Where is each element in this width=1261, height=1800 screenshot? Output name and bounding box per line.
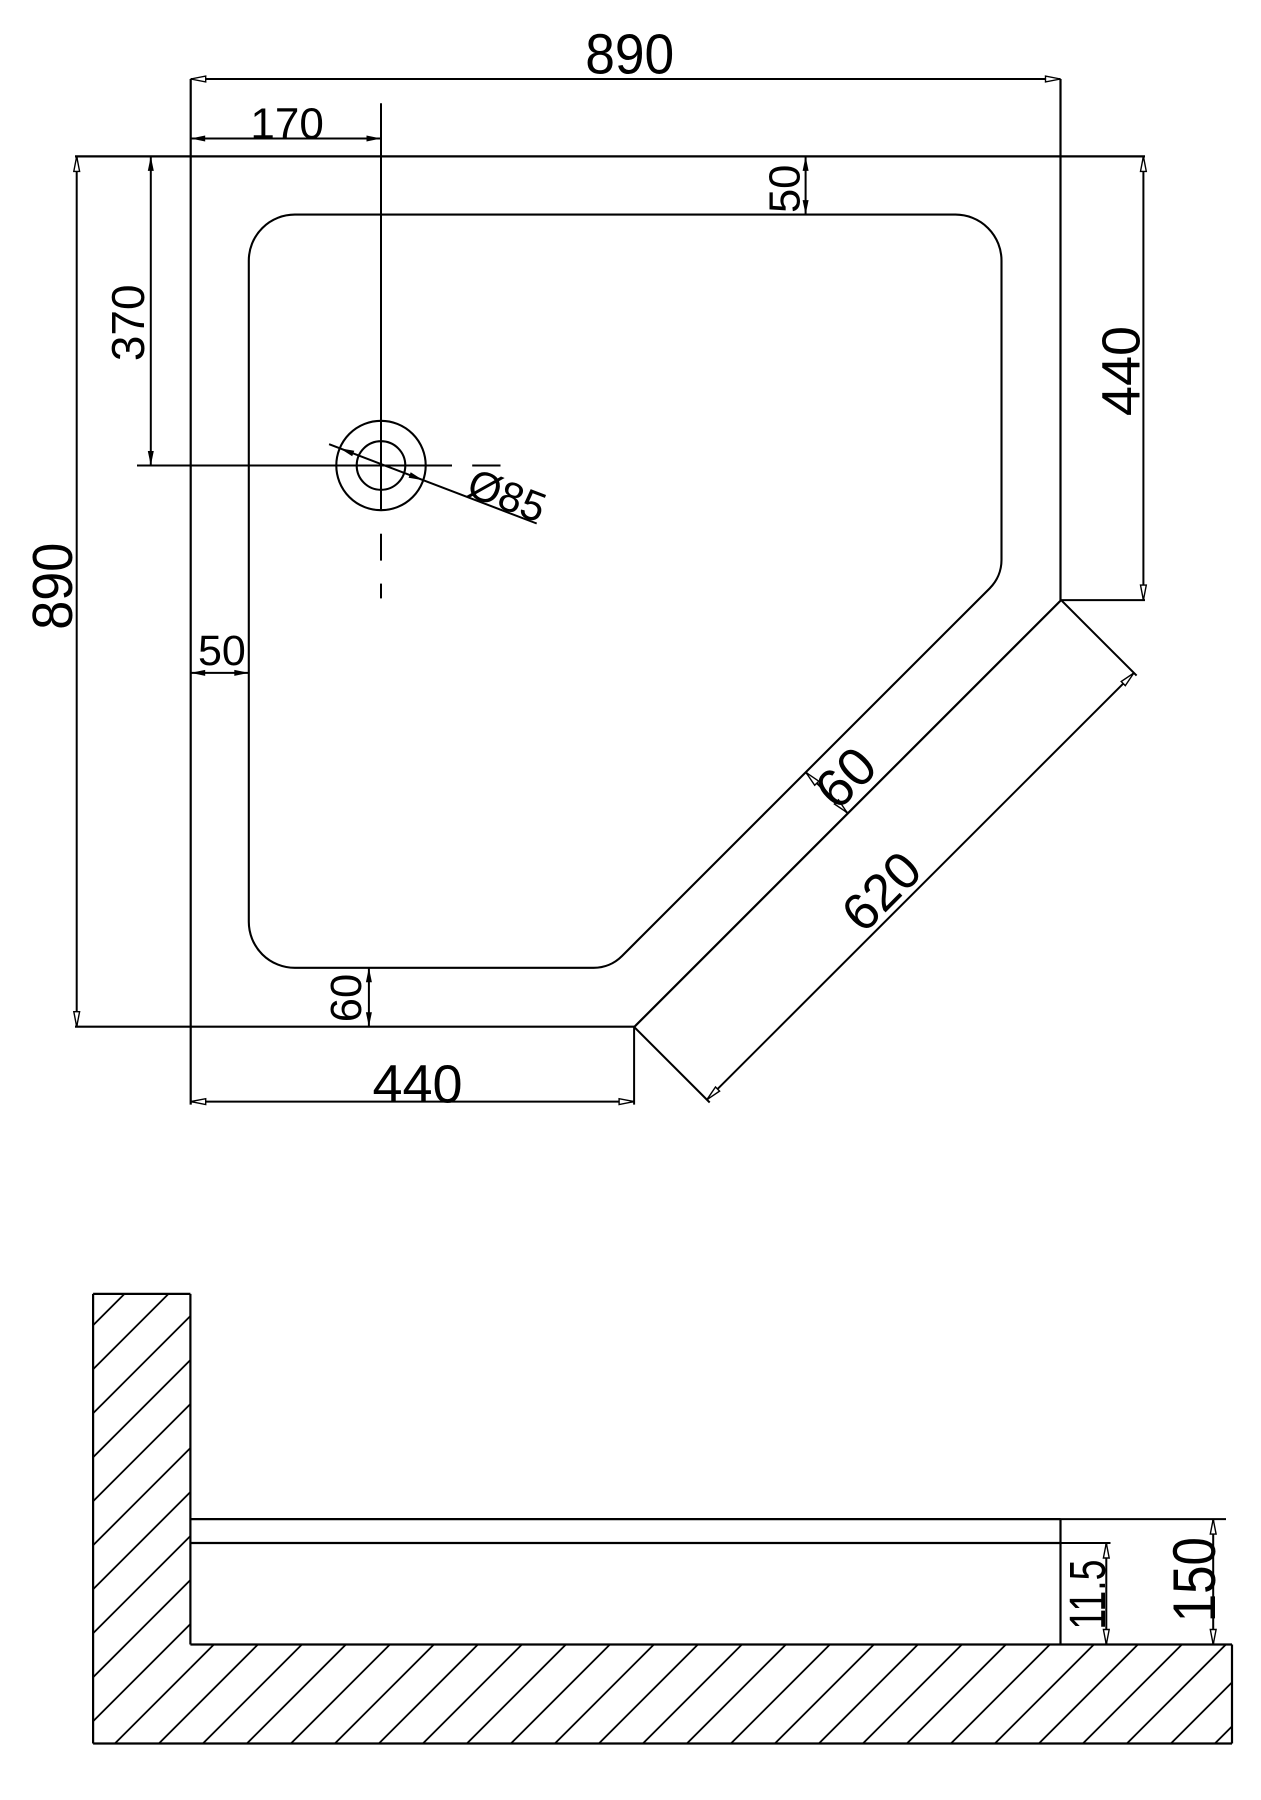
svg-text:60: 60 xyxy=(323,974,371,1022)
svg-text:50: 50 xyxy=(761,165,809,213)
svg-text:170: 170 xyxy=(250,99,323,148)
svg-text:11.5: 11.5 xyxy=(1059,1560,1116,1630)
svg-text:890: 890 xyxy=(21,543,85,630)
svg-text:440: 440 xyxy=(1092,326,1152,416)
svg-text:50: 50 xyxy=(198,627,246,675)
svg-text:440: 440 xyxy=(372,1055,462,1115)
svg-text:150: 150 xyxy=(1161,1537,1228,1622)
svg-text:890: 890 xyxy=(585,23,674,87)
svg-text:370: 370 xyxy=(102,284,154,361)
